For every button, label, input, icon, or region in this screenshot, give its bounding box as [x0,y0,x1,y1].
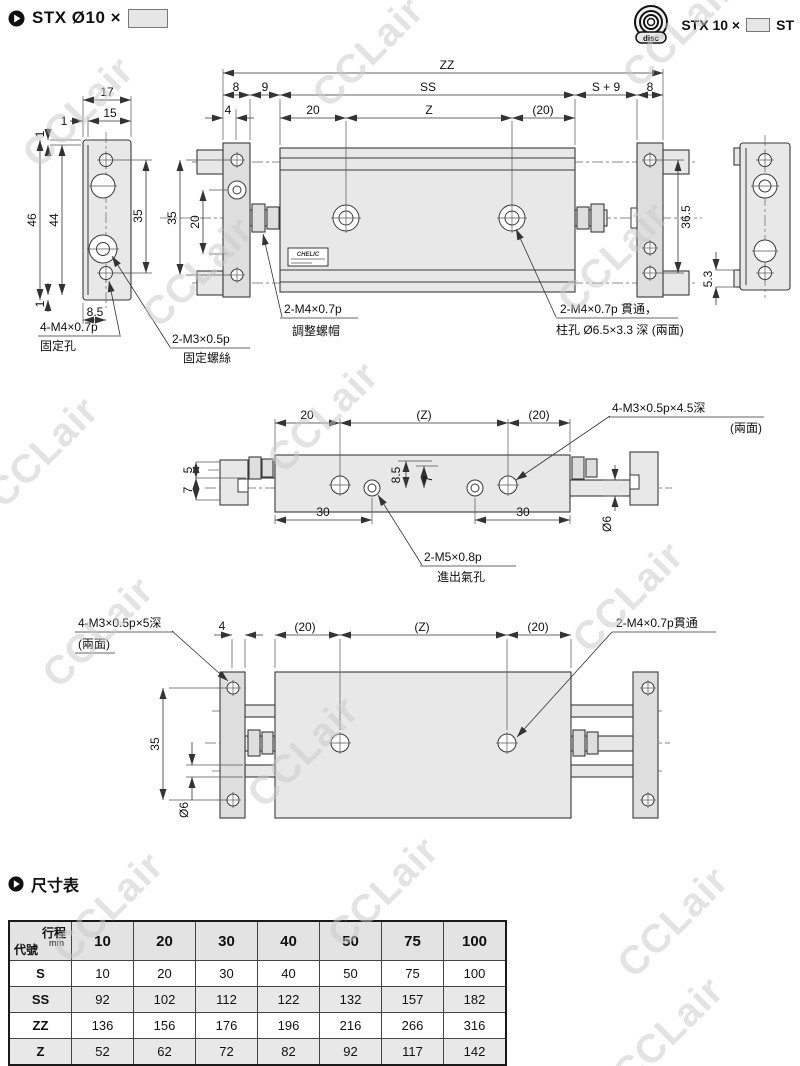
cell: 40 [258,961,320,987]
corner-unit-label: mm [49,938,64,948]
dim-20: 20 [300,408,314,422]
dim-20p: (20) [532,103,553,117]
cell: 216 [320,1013,382,1039]
stroke-placeholder-box-right [746,18,770,32]
col-header: 10 [72,921,134,961]
table-corner-cell: 行程 mm 代號 [9,921,72,961]
model-code-left: STX 10 × [681,17,740,33]
dim-35-plate: 35 [165,211,179,225]
dim-35-side: 35 [131,209,145,223]
note-port-spec: 2-M5×0.8p [424,550,482,564]
col-header: 50 [320,921,382,961]
dim-4: 4 [225,103,232,117]
end-cap-left-view [83,132,131,308]
table-header-row: 行程 mm 代號 10 20 30 40 50 75 100 [9,921,506,961]
corner-code-label: 代號 [14,941,38,958]
cell: 20 [134,961,196,987]
table-row: S 10 20 30 40 50 75 100 [9,961,506,987]
dim-30-left: 30 [316,505,330,519]
play-icon [8,876,24,892]
model-code-suffix: ST [776,17,794,33]
dim-S9: S + 9 [592,80,621,94]
cell: 92 [320,1039,382,1066]
cell: 157 [382,987,444,1013]
front-view-drawing: 17 15 1 1 46 44 35 8.5 1 [0,55,800,395]
dim-44: 44 [47,213,61,227]
cell: 52 [72,1039,134,1066]
table-row: ZZ 136 156 176 196 216 266 316 [9,1013,506,1039]
dim-1-top: 1 [61,114,68,128]
dim-ZZ: ZZ [440,58,455,72]
dim-17: 17 [100,85,114,99]
dim-4: 4 [219,619,226,633]
cell: 136 [72,1013,134,1039]
play-icon [8,10,25,27]
disc-icon: disc [627,4,675,46]
row-label: SS [9,987,72,1013]
table-row: Z 52 62 72 82 92 117 142 [9,1039,506,1066]
dim-8-left: 8 [233,80,240,94]
dim-8.5: 8.5 [87,305,104,319]
dim-20p: (20) [528,408,549,422]
cell: 132 [320,987,382,1013]
cell: 50 [320,961,382,987]
table-section-header: 尺寸表 [8,872,79,896]
note-adjust-nut-spec: 2-M4×0.7p [284,302,342,316]
page-title: STX Ø10 × [32,8,121,28]
dim-8-right: 8 [647,80,654,94]
watermark: CCLair [609,858,738,987]
dim-20-plate: 20 [188,215,202,229]
cell: 100 [444,961,507,987]
dim-Z: (Z) [416,408,431,422]
dim-30-right: 30 [516,505,530,519]
row-label: Z [9,1039,72,1066]
dim-20: 20 [306,103,320,117]
dim-9: 9 [262,80,269,94]
dim-5.3: 5.3 [701,270,715,287]
bottom-view-drawing: 4 (20) (Z) (20) 35 Ø6 4-M3×0.5p×5深 (兩面) [0,610,800,866]
note-through-hole-spec: 2-M4×0.7p 貫通， [560,302,657,316]
note-m3-spec: 4-M3×0.5p×4.5深 [612,401,705,415]
dim-7-left: 7 [181,486,195,493]
cell: 30 [196,961,258,987]
cell: 196 [258,1013,320,1039]
col-header: 100 [444,921,507,961]
cell: 122 [258,987,320,1013]
brand-plate: CHELIC [297,252,320,258]
dim-Z: (Z) [414,620,429,634]
dim-36.5: 36.5 [679,205,693,229]
cell: 92 [72,987,134,1013]
note-fixing-screw-spec: 2-M3×0.5p [172,332,230,346]
stroke-placeholder-box [128,9,168,28]
cell: 142 [444,1039,507,1066]
row-label: ZZ [9,1013,72,1039]
cell: 62 [134,1039,196,1066]
note-m3-faces: (兩面) [730,421,762,435]
end-cap-right-view: 5.3 [701,135,790,305]
cell: 316 [444,1013,507,1039]
note-adjust-nut-label: 調整螺帽 [292,323,340,338]
page: CCLair CCLair CCLair CCLair CCLair CCLai… [0,0,800,1066]
cell: 112 [196,987,258,1013]
top-view-drawing: 20 (Z) (20) 5 7 8.5 7 30 30 [0,395,800,595]
end-cap-left-dims: 17 15 1 1 46 44 35 8.5 1 [25,85,250,365]
dim-d6: Ø6 [600,516,614,532]
header-right: disc STX 10 × ST [627,4,794,46]
cell: 156 [134,1013,196,1039]
dimension-table: 行程 mm 代號 10 20 30 40 50 75 100 S 10 20 3… [8,920,507,1066]
col-header: 40 [258,921,320,961]
cell: 266 [382,1013,444,1039]
cell: 10 [72,961,134,987]
note-fixing-hole-spec: 4-M4×0.7p [40,320,98,334]
dim-15: 15 [103,106,117,120]
cell: 102 [134,987,196,1013]
cylinder-front-view: CHELIC [160,143,702,297]
note-through-hole-detail: 柱孔 Ø6.5×3.3 深 (兩面) [556,322,684,337]
table-section-title: 尺寸表 [31,872,79,896]
watermark: CCLair [604,968,733,1066]
dim-8.5: 8.5 [389,466,403,483]
disc-label: disc [643,34,660,43]
cell: 82 [258,1039,320,1066]
dim-5: 5 [181,466,195,473]
dim-Z: Z [425,103,432,117]
cell: 182 [444,987,507,1013]
cell: 72 [196,1039,258,1066]
header-left: STX Ø10 × [8,8,168,28]
note-m3-spec: 4-M3×0.5p×5深 [78,616,161,630]
col-header: 30 [196,921,258,961]
dim-35: 35 [148,737,162,751]
bottom-view-geometry [205,672,670,818]
dim-20-right: (20) [527,620,548,634]
table-row: SS 92 102 112 122 132 157 182 [9,987,506,1013]
note-m3-faces: (兩面) [78,637,110,651]
note-through-hole: 2-M4×0.7p貫通 [616,616,698,630]
top-view-geometry [205,452,672,512]
col-header: 75 [382,921,444,961]
dim-SS: SS [420,80,436,94]
dim-1-lip: 1 [33,130,47,137]
col-header: 20 [134,921,196,961]
row-label: S [9,961,72,987]
note-fixing-screw-label: 固定螺絲 [183,350,231,365]
dim-46: 46 [25,213,39,227]
dim-1-bottom: 1 [33,300,47,307]
cell: 75 [382,961,444,987]
dim-20-left: (20) [294,620,315,634]
note-fixing-hole-label: 固定孔 [40,338,76,353]
dim-d6: Ø6 [177,802,191,818]
dim-7-mid: 7 [421,475,435,482]
cell: 176 [196,1013,258,1039]
note-port-label: 進出氣孔 [437,570,485,584]
cell: 117 [382,1039,444,1066]
